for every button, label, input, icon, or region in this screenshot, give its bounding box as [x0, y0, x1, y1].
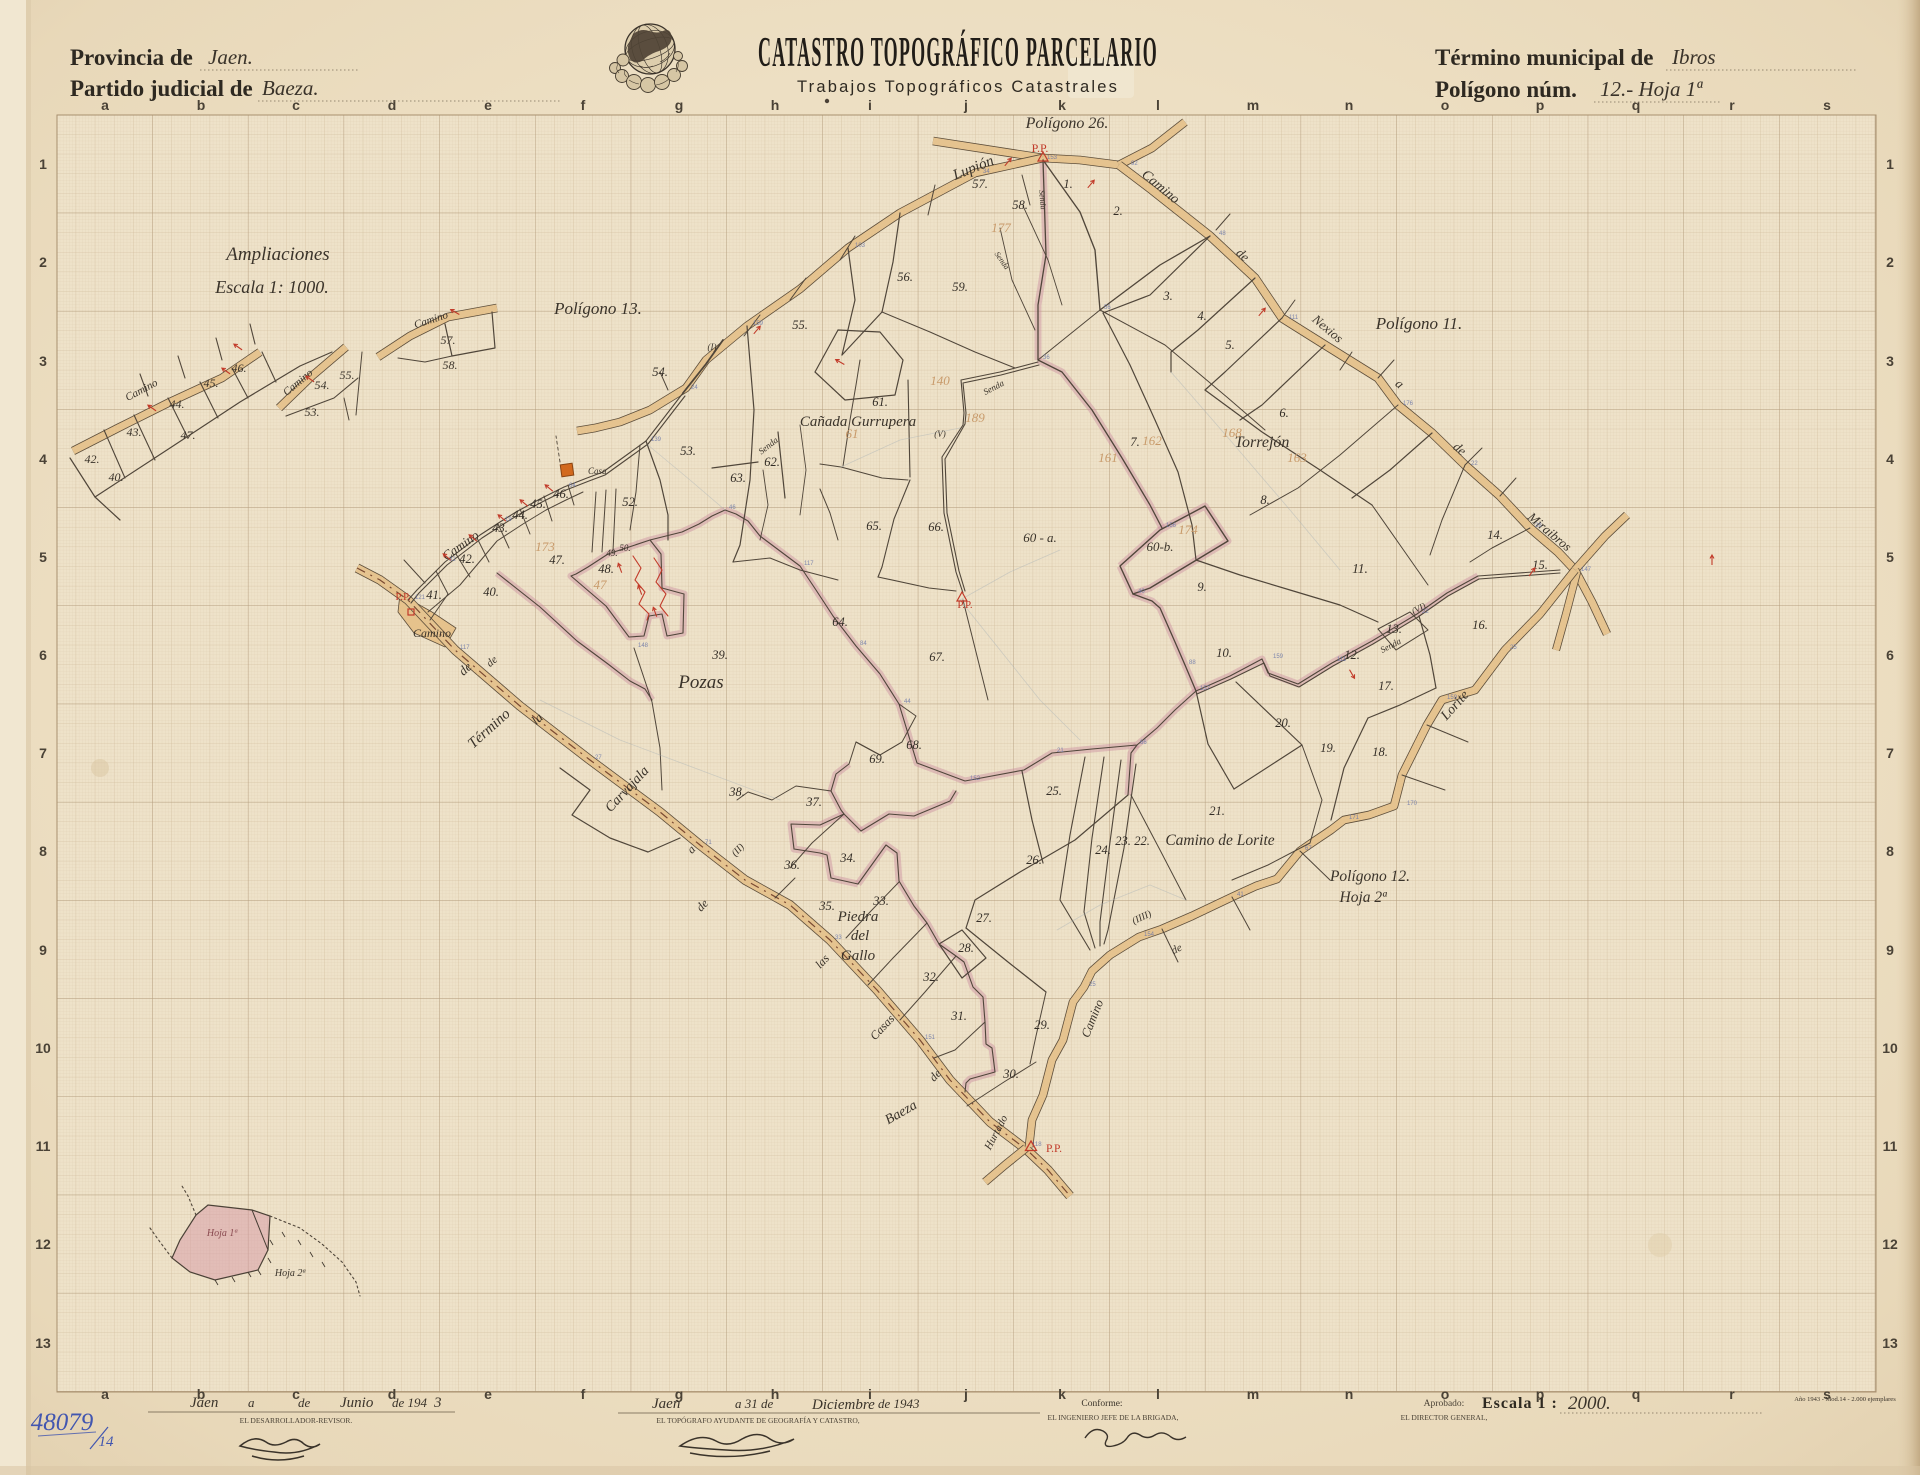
svg-text:9.: 9.	[1197, 580, 1206, 594]
svg-text:i: i	[868, 97, 872, 113]
svg-text:173: 173	[535, 539, 555, 554]
svg-text:154: 154	[1144, 932, 1155, 938]
svg-text:176: 176	[1403, 401, 1414, 407]
svg-text:n: n	[1345, 1386, 1354, 1402]
svg-text:177: 177	[991, 220, 1011, 235]
svg-text:4.: 4.	[1197, 309, 1206, 323]
svg-text:66.: 66.	[928, 520, 944, 534]
svg-text:41: 41	[1237, 892, 1244, 898]
svg-text:35.: 35.	[818, 899, 835, 913]
svg-text:Término municipal de: Término municipal de	[1435, 45, 1654, 70]
svg-text:159: 159	[753, 321, 764, 327]
svg-text:de: de	[298, 1395, 311, 1410]
svg-text:Escala 1 :: Escala 1 :	[1482, 1395, 1558, 1412]
svg-text:168: 168	[1222, 425, 1242, 440]
svg-text:147: 147	[1581, 567, 1592, 573]
svg-text:m: m	[1247, 97, 1259, 113]
svg-text:25: 25	[1510, 645, 1517, 651]
svg-text:r: r	[1729, 97, 1735, 113]
svg-text:56.: 56.	[897, 270, 913, 284]
svg-text:40: 40	[1138, 589, 1145, 595]
svg-text:43.: 43.	[127, 425, 142, 439]
svg-text:l: l	[1156, 1386, 1160, 1402]
svg-text:Torrejón: Torrejón	[1235, 434, 1290, 451]
svg-text:55.: 55.	[340, 368, 355, 382]
svg-text:g: g	[675, 97, 684, 113]
svg-text:32.: 32.	[922, 970, 939, 984]
svg-text:50.: 50.	[619, 543, 630, 553]
svg-text:39.: 39.	[711, 648, 728, 662]
svg-text:36.: 36.	[783, 858, 800, 872]
svg-text:P.P.: P.P.	[1032, 141, 1049, 155]
svg-text:24: 24	[691, 385, 698, 391]
svg-text:8.: 8.	[1260, 493, 1269, 507]
svg-text:148: 148	[638, 643, 649, 649]
svg-text:25: 25	[1089, 982, 1096, 988]
svg-text:Casa: Casa	[588, 466, 607, 476]
svg-text:64.: 64.	[832, 615, 848, 629]
svg-text:33: 33	[835, 935, 842, 941]
svg-text:60 - a.: 60 - a.	[1023, 530, 1057, 545]
svg-text:62.: 62.	[764, 455, 780, 469]
svg-text:47.: 47.	[181, 428, 196, 442]
svg-text:103: 103	[855, 243, 866, 249]
svg-text:58.: 58.	[443, 358, 458, 372]
svg-text:Polígono núm.: Polígono núm.	[1435, 77, 1577, 102]
svg-text:38.: 38.	[728, 785, 745, 799]
svg-text:47.: 47.	[549, 553, 565, 567]
svg-text:22: 22	[1471, 461, 1478, 467]
svg-text:(V): (V)	[934, 429, 946, 439]
svg-text:139: 139	[651, 437, 662, 443]
svg-text:5: 5	[1886, 549, 1894, 565]
svg-text:2: 2	[39, 254, 47, 270]
svg-text:13: 13	[1882, 1335, 1898, 1351]
svg-text:f: f	[581, 1386, 586, 1402]
svg-text:19: 19	[505, 517, 512, 523]
svg-text:j: j	[963, 97, 968, 113]
svg-text:Conforme:: Conforme:	[1081, 1398, 1122, 1409]
svg-text:Trabajos Topográficos Catastra: Trabajos Topográficos Catastrales	[797, 78, 1119, 96]
svg-text:6: 6	[39, 647, 47, 663]
svg-text:s: s	[1823, 97, 1831, 113]
svg-text:P.P.: P.P.	[395, 591, 411, 603]
svg-text:10.: 10.	[1216, 646, 1232, 660]
svg-text:57.: 57.	[441, 333, 456, 347]
svg-text:48079: 48079	[31, 1409, 94, 1436]
svg-text:26.: 26.	[1026, 853, 1042, 867]
svg-text:19.: 19.	[1320, 741, 1336, 755]
svg-text:156: 156	[1166, 523, 1177, 529]
svg-text:EL INGENIERO JEFE DE LA BRIGAD: EL INGENIERO JEFE DE LA BRIGADA,	[1048, 1413, 1179, 1422]
svg-text:h: h	[771, 97, 780, 113]
svg-text:44: 44	[904, 699, 911, 705]
svg-text:66: 66	[1140, 740, 1147, 746]
svg-text:2.: 2.	[1113, 204, 1122, 218]
svg-text:159: 159	[1447, 695, 1458, 701]
svg-text:48: 48	[1219, 231, 1226, 237]
svg-text:a: a	[101, 1386, 109, 1402]
svg-text:69.: 69.	[869, 752, 885, 766]
svg-text:88: 88	[1189, 660, 1196, 666]
svg-text:Escala 1: 1000.: Escala 1: 1000.	[214, 277, 328, 297]
svg-text:21.: 21.	[1209, 804, 1225, 818]
svg-text:54.: 54.	[652, 365, 668, 379]
svg-text:Hoja 2ª: Hoja 2ª	[274, 1268, 307, 1279]
svg-text:44.: 44.	[170, 397, 185, 411]
svg-text:24.: 24.	[1095, 843, 1111, 857]
svg-text:57.: 57.	[972, 177, 988, 191]
svg-text:a 31 de: a 31 de	[735, 1396, 774, 1411]
svg-text:92: 92	[1131, 161, 1138, 167]
svg-text:12: 12	[1882, 1236, 1898, 1252]
svg-text:Hoja 1ª: Hoja 1ª	[206, 1228, 239, 1239]
svg-text:Diciembre: Diciembre	[811, 1397, 875, 1413]
svg-text:14.: 14.	[1487, 528, 1503, 542]
svg-text:Baeza.: Baeza.	[262, 76, 319, 100]
svg-text:29.: 29.	[1034, 1018, 1050, 1032]
svg-text:30.: 30.	[1002, 1067, 1019, 1081]
svg-text:EL TOPÓGRAFO AYUDANTE DE GEOGR: EL TOPÓGRAFO AYUDANTE DE GEOGRAFÍA Y CAT…	[656, 1415, 859, 1425]
svg-text:Pozas: Pozas	[677, 672, 723, 693]
svg-text:7: 7	[1886, 745, 1894, 761]
svg-text:2: 2	[1886, 254, 1894, 270]
svg-text:84: 84	[860, 641, 867, 647]
svg-text:Provincia de: Provincia de	[70, 45, 193, 70]
svg-text:12: 12	[35, 1236, 51, 1252]
svg-text:4: 4	[39, 451, 47, 467]
svg-text:161: 161	[1098, 450, 1118, 465]
svg-text:11: 11	[1883, 1138, 1898, 1154]
svg-text:1.: 1.	[1063, 177, 1072, 191]
svg-text:CATASTRO TOPOGRÁFICO PARCELARI: CATASTRO TOPOGRÁFICO PARCELARIO	[758, 30, 1158, 77]
svg-text:11: 11	[36, 1138, 51, 1154]
svg-text:12.- Hoja 1ª: 12.- Hoja 1ª	[1600, 77, 1703, 101]
svg-text:de 1943: de 1943	[878, 1396, 920, 1411]
svg-text:r: r	[1729, 1386, 1735, 1402]
svg-text:3: 3	[433, 1395, 442, 1411]
svg-text:Camino de Lorite: Camino de Lorite	[1165, 832, 1274, 849]
svg-text:22.: 22.	[1134, 834, 1150, 848]
svg-text:46: 46	[729, 505, 736, 511]
svg-text:e: e	[484, 1386, 492, 1402]
svg-text:111: 111	[1289, 315, 1299, 321]
svg-text:54.: 54.	[315, 378, 330, 392]
svg-text:10: 10	[1882, 1040, 1898, 1056]
svg-text:Hoja 2ª: Hoja 2ª	[1339, 889, 1388, 906]
svg-text:67.: 67.	[929, 650, 945, 664]
svg-text:170: 170	[1407, 801, 1418, 807]
svg-text:13: 13	[35, 1335, 51, 1351]
svg-text:12.: 12.	[1344, 648, 1360, 662]
svg-text:1: 1	[1886, 156, 1894, 172]
svg-text:28.: 28.	[958, 941, 974, 955]
svg-text:171: 171	[1349, 815, 1360, 821]
svg-text:4: 4	[1886, 451, 1894, 467]
svg-text:EL DIRECTOR GENERAL,: EL DIRECTOR GENERAL,	[1401, 1413, 1488, 1422]
svg-text:16.: 16.	[1472, 618, 1488, 632]
svg-text:55.: 55.	[792, 318, 808, 332]
svg-text:22: 22	[1422, 609, 1429, 615]
svg-text:de 194: de 194	[392, 1395, 428, 1410]
svg-text:d: d	[388, 97, 397, 113]
svg-text:n: n	[1345, 97, 1354, 113]
svg-text:Aprobado:: Aprobado:	[1424, 1399, 1465, 1409]
svg-text:46.: 46.	[232, 361, 247, 375]
svg-text:56: 56	[1104, 305, 1111, 311]
svg-text:f: f	[581, 97, 586, 113]
svg-text:68.: 68.	[906, 738, 922, 752]
svg-text:7: 7	[39, 745, 47, 761]
svg-text:(I): (I)	[708, 342, 717, 352]
svg-text:Senda: Senda	[1037, 190, 1048, 210]
svg-text:10: 10	[35, 1040, 51, 1056]
svg-text:Polígono 13.: Polígono 13.	[553, 299, 642, 318]
svg-text:Ibros: Ibros	[1671, 45, 1716, 69]
svg-text:3.: 3.	[1162, 289, 1172, 303]
svg-text:61.: 61.	[872, 395, 888, 409]
svg-text:152: 152	[970, 776, 981, 782]
svg-text:5: 5	[39, 549, 47, 565]
svg-text:37.: 37.	[805, 795, 822, 809]
svg-text:Ampliaciones: Ampliaciones	[224, 244, 329, 265]
svg-text:Piedra: Piedra	[837, 909, 879, 925]
svg-text:Polígono 26.: Polígono 26.	[1025, 115, 1109, 132]
svg-text:9: 9	[39, 942, 47, 958]
svg-text:18.: 18.	[1372, 745, 1388, 759]
svg-text:k: k	[1058, 1386, 1066, 1402]
svg-text:40.: 40.	[483, 585, 499, 599]
svg-text:140: 140	[930, 373, 950, 388]
svg-text:60-b.: 60-b.	[1146, 539, 1173, 554]
svg-text:11.: 11.	[1352, 561, 1368, 576]
svg-text:a: a	[248, 1395, 255, 1410]
svg-text:25.: 25.	[1046, 784, 1062, 798]
svg-text:157: 157	[1200, 686, 1211, 692]
svg-text:43.: 43.	[492, 521, 508, 535]
svg-text:28: 28	[1535, 523, 1542, 529]
svg-text:q: q	[1632, 1386, 1641, 1402]
svg-text:41.: 41.	[426, 588, 442, 602]
svg-text:6: 6	[1886, 647, 1894, 663]
svg-text:Gallo: Gallo	[841, 948, 876, 964]
svg-text:23.: 23.	[1115, 834, 1131, 848]
svg-text:3: 3	[1886, 353, 1894, 369]
svg-text:49.: 49.	[606, 548, 617, 558]
svg-text:Año 1943 - Mod.14 - 2.000 ejem: Año 1943 - Mod.14 - 2.000 ejemplares	[1794, 1396, 1896, 1403]
svg-text:17.: 17.	[1378, 679, 1394, 693]
svg-text:l: l	[1156, 97, 1160, 113]
svg-text:53.: 53.	[680, 444, 696, 458]
svg-text:53.: 53.	[305, 405, 320, 419]
svg-text:162: 162	[1142, 433, 1162, 448]
svg-text:61: 61	[846, 426, 859, 441]
svg-text:5.: 5.	[1225, 338, 1234, 352]
svg-text:46.: 46.	[553, 487, 569, 501]
svg-text:64: 64	[569, 483, 576, 489]
svg-text:7.: 7.	[1130, 435, 1139, 449]
svg-text:9: 9	[1886, 942, 1894, 958]
svg-text:Jaen: Jaen	[652, 1396, 680, 1412]
svg-text:47: 47	[594, 577, 608, 592]
svg-text:13.: 13.	[1386, 622, 1402, 636]
svg-text:159: 159	[1273, 654, 1284, 660]
svg-text:k: k	[1058, 97, 1066, 113]
svg-text:34.: 34.	[839, 851, 856, 865]
svg-text:45.: 45.	[204, 376, 219, 390]
svg-text:P.P.: P.P.	[1046, 1143, 1062, 1155]
svg-text:63.: 63.	[730, 471, 746, 485]
svg-text:m: m	[1247, 1386, 1259, 1402]
svg-text:Jaen: Jaen	[190, 1395, 218, 1411]
svg-text:121: 121	[415, 595, 426, 601]
svg-text:j: j	[963, 1386, 968, 1402]
svg-text:21: 21	[1057, 748, 1064, 754]
svg-text:67: 67	[1305, 846, 1312, 852]
svg-text:6.: 6.	[1279, 406, 1288, 420]
svg-text:71: 71	[705, 840, 712, 846]
svg-text:Polígono 11.: Polígono 11.	[1375, 314, 1463, 333]
svg-text:117: 117	[460, 645, 470, 651]
svg-text:33.: 33.	[872, 894, 889, 908]
svg-text:40.: 40.	[109, 470, 124, 484]
svg-text:1: 1	[39, 156, 47, 172]
svg-text:48.: 48.	[598, 562, 614, 576]
svg-text:Polígono 12.: Polígono 12.	[1329, 868, 1410, 885]
svg-text:42.: 42.	[85, 452, 100, 466]
svg-text:36: 36	[1043, 355, 1050, 361]
svg-text:153: 153	[1047, 155, 1058, 161]
svg-text:20.: 20.	[1275, 716, 1291, 730]
svg-text:117: 117	[804, 561, 814, 567]
svg-text:31.: 31.	[950, 1009, 967, 1023]
svg-text:Jaen.: Jaen.	[208, 45, 253, 69]
svg-text:34: 34	[983, 169, 990, 175]
svg-text:27: 27	[595, 755, 602, 761]
svg-text:59.: 59.	[952, 280, 968, 294]
svg-text:42.: 42.	[459, 552, 475, 566]
svg-text:8: 8	[39, 843, 47, 859]
svg-text:163: 163	[1287, 450, 1307, 465]
svg-text:27.: 27.	[976, 911, 992, 925]
svg-text:44.: 44.	[512, 508, 528, 522]
svg-text:174: 174	[1178, 522, 1198, 537]
svg-text:EL DESARROLLADOR-REVISOR.: EL DESARROLLADOR-REVISOR.	[240, 1416, 353, 1425]
svg-text:8: 8	[1886, 843, 1894, 859]
svg-text:58.: 58.	[1012, 198, 1028, 212]
svg-text:2000.: 2000.	[1568, 1393, 1611, 1414]
svg-text:Junio: Junio	[340, 1395, 374, 1411]
svg-text:Partido judicial de: Partido judicial de	[70, 76, 253, 101]
svg-text:45.: 45.	[530, 497, 546, 511]
svg-text:151: 151	[925, 1035, 936, 1041]
svg-text:65.: 65.	[866, 519, 882, 533]
svg-text:e: e	[484, 97, 492, 113]
svg-text:3: 3	[39, 353, 47, 369]
svg-text:52.: 52.	[622, 495, 638, 509]
svg-text:del: del	[851, 928, 869, 944]
svg-text:111: 111	[1337, 657, 1347, 663]
svg-text:189: 189	[965, 410, 985, 425]
svg-text:Camino: Camino	[413, 626, 451, 640]
